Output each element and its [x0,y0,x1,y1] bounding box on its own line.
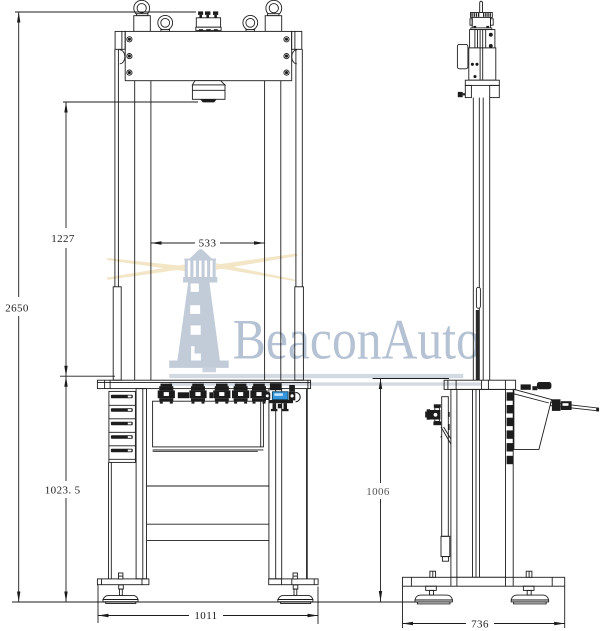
svg-text:1227: 1227 [51,233,75,245]
svg-text:736: 736 [471,619,489,631]
svg-text:533: 533 [199,238,217,250]
svg-text:BeaconAuto: BeaconAuto [233,309,481,372]
svg-text:2650: 2650 [5,303,29,315]
svg-text:1006: 1006 [366,486,390,498]
svg-text:1023. 5: 1023. 5 [45,485,81,497]
svg-text:1011: 1011 [194,610,217,622]
